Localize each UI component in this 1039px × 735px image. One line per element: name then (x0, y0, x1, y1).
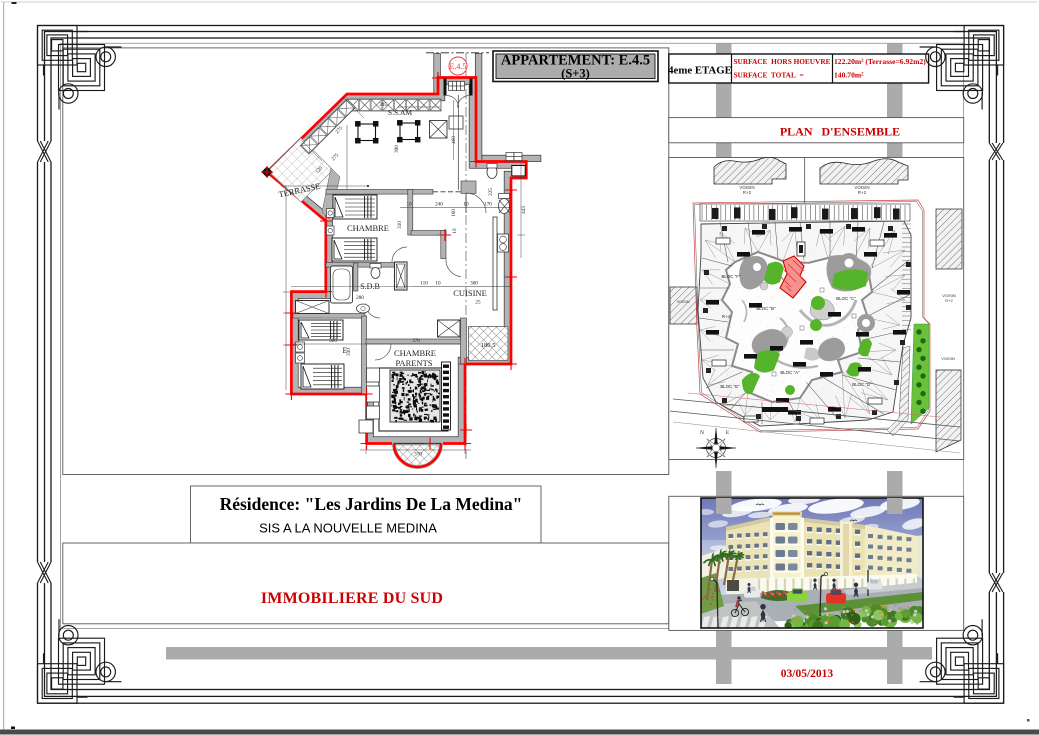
svg-text:E: E (726, 431, 729, 436)
svg-text:BLOC "F": BLOC "F" (722, 274, 741, 279)
svg-text:CHAMBRE: CHAMBRE (394, 348, 436, 358)
svg-text:170: 170 (484, 202, 492, 208)
svg-text:10: 10 (463, 202, 469, 208)
svg-text:PLAN D'ENSEMBLE: PLAN D'ENSEMBLE (780, 125, 900, 139)
svg-text:10: 10 (452, 228, 458, 234)
svg-text:R+2: R+2 (945, 298, 953, 303)
svg-text:BLOC "E": BLOC "E" (720, 384, 740, 389)
svg-text:330: 330 (346, 348, 352, 356)
svg-text:10: 10 (435, 281, 441, 287)
svg-text:VOISIN: VOISIN (941, 356, 955, 361)
svg-text:110: 110 (420, 281, 428, 287)
svg-text:BLOC "A": BLOC "A" (780, 370, 800, 375)
svg-text:460: 460 (451, 136, 457, 144)
svg-text:PARENTS: PARENTS (395, 358, 432, 368)
svg-text:300: 300 (470, 281, 478, 287)
svg-text:BLOC "C": BLOC "C" (836, 296, 856, 301)
svg-text:CHAMBRE: CHAMBRE (347, 223, 389, 233)
svg-text:BLOC "D": BLOC "D" (852, 382, 872, 387)
svg-text:180.5: 180.5 (481, 342, 496, 349)
svg-text:390: 390 (394, 145, 400, 153)
svg-text:310: 310 (397, 221, 403, 229)
svg-text:R+2: R+2 (858, 190, 867, 195)
svg-text:395: 395 (379, 102, 387, 108)
svg-text:370: 370 (414, 452, 422, 458)
svg-text:25: 25 (475, 300, 481, 306)
svg-text:VOISIN: VOISIN (677, 300, 690, 304)
svg-text:140.70m²: 140.70m² (834, 71, 864, 80)
svg-text:R+2: R+2 (743, 190, 752, 195)
svg-text:03/05/2013: 03/05/2013 (781, 668, 834, 680)
svg-text:R+4: R+4 (722, 314, 731, 319)
svg-text:(S+3): (S+3) (561, 67, 590, 81)
svg-text:BLOC "B": BLOC "B" (756, 306, 776, 311)
svg-text:240: 240 (435, 202, 443, 208)
svg-text:4eme ETAGE: 4eme ETAGE (668, 65, 732, 77)
svg-text:443: 443 (521, 206, 527, 214)
svg-text:370: 370 (412, 338, 420, 344)
svg-text:225: 225 (488, 188, 494, 196)
svg-text:S.S.AM: S.S.AM (388, 108, 413, 117)
svg-text:10: 10 (406, 202, 412, 208)
svg-text:SURFACE HORS HOEUVRE: SURFACE HORS HOEUVRE (734, 57, 831, 66)
svg-text:280: 280 (356, 295, 364, 301)
svg-text:Résidence: "Les Jardins De La: Résidence: "Les Jardins De La Medina" (220, 494, 523, 514)
svg-text:SIS A LA NOUVELLE MEDINA: SIS A LA NOUVELLE MEDINA (259, 521, 437, 536)
svg-text:CUISINE: CUISINE (453, 288, 487, 298)
svg-text:N: N (700, 430, 704, 436)
svg-text:320: 320 (329, 338, 337, 344)
svg-text:E.4.5: E.4.5 (450, 62, 467, 71)
svg-text:IMMOBILIERE DU SUD: IMMOBILIERE DU SUD (261, 590, 443, 607)
svg-text:SURFACE TOTAL =: SURFACE TOTAL = (734, 71, 804, 80)
svg-text:160: 160 (451, 209, 457, 217)
svg-text:122.20m² (Terrasse=6.92m2): 122.20m² (Terrasse=6.92m2) (834, 57, 926, 66)
